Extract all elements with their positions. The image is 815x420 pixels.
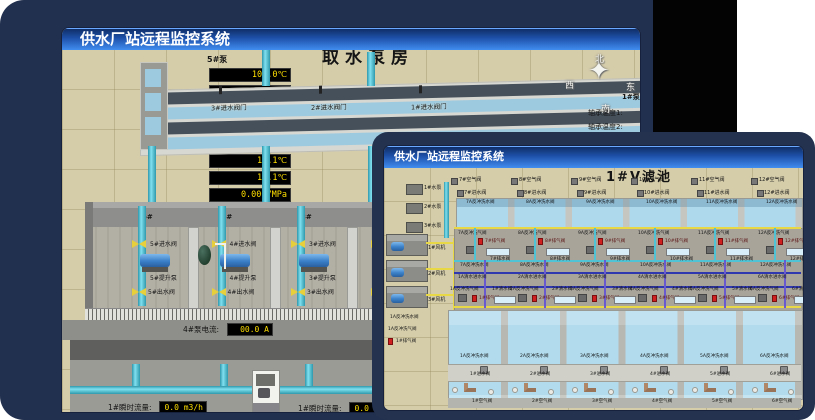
pump-house-left-wall bbox=[85, 202, 93, 308]
inlet-valve-label: 11#进水阀 bbox=[704, 191, 730, 196]
nozzle-dot bbox=[452, 387, 458, 393]
green-tank bbox=[198, 245, 211, 265]
bottom-walkway bbox=[448, 364, 801, 382]
nozzle-dot bbox=[632, 387, 638, 393]
air-pipe-elbow-icon bbox=[524, 383, 536, 392]
nozzle-dot bbox=[572, 387, 578, 393]
well-riser bbox=[132, 364, 140, 388]
wing-cell bbox=[145, 117, 161, 135]
water-box bbox=[666, 248, 690, 256]
gate-label: 1#进水阀门 bbox=[411, 103, 447, 112]
gate-label: 2#进水阀门 bbox=[311, 103, 347, 112]
bw-air-label: 5A反冲洗气阀 bbox=[690, 288, 718, 293]
pump-body[interactable] bbox=[140, 254, 170, 267]
inlet-valve-icon[interactable] bbox=[132, 240, 146, 249]
nozzle-dot bbox=[512, 387, 518, 393]
machine-icon bbox=[638, 294, 647, 302]
gate-valve-icon bbox=[219, 86, 222, 94]
drain-valve-label: 11#排水阀 bbox=[730, 258, 753, 263]
water-box bbox=[486, 248, 510, 256]
vent-valve-label: 7#排气阀 bbox=[485, 240, 505, 245]
air-valve-label: 11#空气阀 bbox=[699, 178, 725, 183]
inlet-valve-label: 4#进水阀 bbox=[230, 242, 257, 248]
reading-value: 0.0007MPa bbox=[209, 188, 291, 202]
inlet-valve-label: 12#进水阀 bbox=[764, 191, 790, 196]
cw-inlet-label: 1A清水进水阀 bbox=[458, 276, 486, 281]
bw-air-label: 6A反冲洗气阀 bbox=[750, 288, 778, 293]
inlet-valve-label: 2#进水阀 bbox=[530, 373, 550, 378]
nozzle-dot bbox=[548, 389, 554, 395]
pump4-current-value: 00.0 A bbox=[227, 323, 273, 336]
air-valve-label: 10#空气阀 bbox=[639, 178, 665, 183]
well-pump-box-base bbox=[253, 403, 279, 412]
machine-icon bbox=[458, 294, 467, 302]
air-valve-icon[interactable] bbox=[511, 178, 518, 185]
bw-water-label: 12A反冲洗水阀 bbox=[760, 264, 791, 269]
nozzle-dot bbox=[692, 387, 698, 393]
top-pools bbox=[456, 198, 803, 230]
inlet-valve-icon[interactable] bbox=[577, 190, 584, 197]
air-valve-label: 6#空气阀 bbox=[772, 400, 792, 405]
bw-air-label: 9A反冲洗气阀 bbox=[578, 232, 606, 237]
air-valve-label: 7#空气阀 bbox=[459, 178, 481, 183]
vent-valve-icon[interactable] bbox=[712, 295, 717, 302]
bw-water-top-label: 7A反冲洗水阀 bbox=[466, 201, 494, 206]
back-window-title: 供水厂站远程监控系统 bbox=[80, 30, 230, 48]
outlet-valve-icon[interactable] bbox=[212, 288, 226, 297]
air-valve-label: 12#空气阀 bbox=[759, 178, 785, 183]
inlet-valve-label: 6#进水阀 bbox=[770, 373, 790, 378]
water-box bbox=[546, 248, 570, 256]
machine-icon bbox=[578, 294, 587, 302]
inlet-valve-label: 3#进水阀 bbox=[309, 242, 336, 248]
nozzle-dot bbox=[488, 389, 494, 395]
air-valve-icon[interactable] bbox=[571, 178, 578, 185]
air-valve-label: 9#空气阀 bbox=[579, 178, 601, 183]
pump1-row2: 轴承温度2: bbox=[588, 124, 623, 131]
bw-air-label: 2A反冲洗气阀 bbox=[510, 288, 538, 293]
pump-body[interactable] bbox=[299, 254, 329, 267]
yellow-line-top bbox=[454, 227, 801, 229]
air-pipe-elbow-icon bbox=[464, 383, 476, 392]
air-valve-label: 5#空气阀 bbox=[712, 400, 732, 405]
left-vent-label: 1#排气阀 bbox=[396, 340, 416, 345]
water-box bbox=[794, 296, 803, 304]
water-box bbox=[674, 296, 696, 304]
blower-yellow-stub bbox=[426, 268, 454, 270]
bottom-pools bbox=[448, 310, 803, 400]
bw-water-top-label: 10A反冲洗水阀 bbox=[646, 201, 677, 206]
cyan-drop bbox=[474, 228, 476, 260]
nozzle-dot bbox=[728, 389, 734, 395]
small-pump-icon bbox=[406, 222, 423, 233]
compass-north: 北 bbox=[595, 52, 604, 65]
bw-air-label: 3A反冲洗气阀 bbox=[570, 288, 598, 293]
nozzle-dot bbox=[608, 389, 614, 395]
bw-water-top-label: 11A反冲洗水阀 bbox=[706, 201, 737, 206]
outlet-valve-icon[interactable] bbox=[291, 288, 305, 297]
blower-label: 1#风机 bbox=[428, 246, 445, 251]
vent-valve-label: 11#排气阀 bbox=[725, 240, 748, 245]
vent-valve-icon[interactable] bbox=[718, 238, 723, 245]
bw-air-label: 8A反冲洗气阀 bbox=[518, 232, 546, 237]
vent-valve-icon[interactable] bbox=[658, 238, 663, 245]
tank-bracket bbox=[215, 243, 226, 269]
gate-valve-icon bbox=[419, 85, 422, 93]
blue-header-pipe-1 bbox=[454, 272, 801, 274]
flow-left-value: 0.0 m3/h bbox=[159, 401, 207, 412]
air-pipe-elbow-icon bbox=[704, 383, 716, 392]
bw-water-label: 3A反冲洗水阀 bbox=[580, 355, 608, 360]
water-box bbox=[614, 296, 636, 304]
yellow-line-bottom bbox=[454, 306, 801, 308]
inlet-valve-icon[interactable] bbox=[457, 190, 464, 197]
pump4-current-label: 4#泵电流: bbox=[183, 326, 219, 334]
bw-air-label: 1A反冲洗气阀 bbox=[450, 288, 478, 293]
water-box bbox=[554, 296, 576, 304]
bottom-gray-strip bbox=[448, 398, 801, 408]
pipe-riser bbox=[262, 50, 270, 86]
small-pump-label: 1#水泵 bbox=[424, 186, 441, 191]
blower-yellow-stub bbox=[426, 294, 454, 296]
wing-cell bbox=[145, 93, 161, 111]
left-bw-air-label: 1A反冲洗气阀 bbox=[388, 328, 416, 333]
vent-valve-icon[interactable] bbox=[778, 238, 783, 245]
left-pipe bbox=[444, 182, 449, 238]
inlet-valve-label: 7#进水阀 bbox=[464, 191, 486, 196]
bw-water-top-label: 8A反冲洗水阀 bbox=[526, 201, 554, 206]
drain-valve-label: 10#排水阀 bbox=[670, 258, 693, 263]
small-pump-icon bbox=[406, 184, 423, 195]
small-pump-label: 2#水泵 bbox=[424, 205, 441, 210]
inlet-valve-label: 5#进水阀 bbox=[150, 242, 177, 248]
gate-valve-icon bbox=[319, 86, 322, 94]
vent-valve-icon[interactable] bbox=[532, 295, 537, 302]
compass-east: 东 bbox=[626, 80, 635, 93]
blower-pump-icon bbox=[391, 242, 404, 251]
inlet-valve-label: 8#进水阀 bbox=[524, 191, 546, 196]
vent-valve-icon[interactable] bbox=[478, 238, 483, 245]
pump1-title: 1#泵 bbox=[622, 94, 640, 101]
inlet-valve-icon[interactable] bbox=[757, 190, 764, 197]
pump-base bbox=[301, 267, 327, 272]
air-valve-icon[interactable] bbox=[691, 178, 698, 185]
cw-inlet-label: 2A清水进水阀 bbox=[518, 276, 546, 281]
inlet-valve-label: 9#进水阀 bbox=[584, 191, 606, 196]
outlet-valve-label: 4#出水阀 bbox=[228, 290, 255, 296]
machine-icon bbox=[698, 294, 707, 302]
nozzle-dot bbox=[788, 389, 794, 395]
bw-water-label: 1A反冲洗水阀 bbox=[460, 355, 488, 360]
left-bw-water-label: 1A反冲洗水阀 bbox=[390, 316, 418, 321]
cw-inlet-label: 5A清水进水阀 bbox=[698, 276, 726, 281]
inlet-gate[interactable]: 2#进水阀门 bbox=[311, 94, 347, 114]
pump-label: 4#提升泵 bbox=[230, 276, 257, 282]
air-valve-label: 3#空气阀 bbox=[592, 400, 612, 405]
well-pump-icon bbox=[256, 374, 275, 386]
air-valve-label: 8#空气阀 bbox=[519, 178, 541, 183]
cw-inlet-label: 6A清水进水阀 bbox=[758, 276, 786, 281]
small-pump-icon bbox=[406, 203, 423, 214]
window-v-filter: 供水厂站远程监控系统 1#V滤池 1#水泵 2#水泵 bbox=[384, 146, 803, 410]
well-riser bbox=[220, 364, 228, 388]
vent-valve-icon[interactable] bbox=[538, 238, 543, 245]
reading-value: 18.1℃ bbox=[209, 154, 291, 168]
small-pump-label: 3#水泵 bbox=[424, 224, 441, 229]
flow-left-label: 1#瞬时流量: bbox=[108, 404, 152, 412]
vent-valve-icon[interactable] bbox=[652, 295, 657, 302]
blower-pump-icon bbox=[391, 268, 404, 277]
drain-valve-label: 7#排水阀 bbox=[490, 258, 510, 263]
back-window-titlebar[interactable]: 供水厂站远程监控系统 bbox=[62, 28, 640, 50]
vent-valve-icon[interactable] bbox=[592, 295, 597, 302]
desktop: 供水厂站远程监控系统 取水泵房 5#泵 轴承温度1: 100.0℃ bbox=[0, 0, 815, 420]
bw-water-label: 4A反冲洗水阀 bbox=[640, 355, 668, 360]
air-pipe-elbow-icon bbox=[644, 383, 656, 392]
inlet-valve-label: 3#进水阀 bbox=[590, 373, 610, 378]
pipe-riser bbox=[367, 52, 375, 86]
front-window-titlebar[interactable]: 供水厂站远程监控系统 bbox=[384, 146, 803, 168]
pump-label: 5#提升泵 bbox=[150, 276, 177, 282]
vent-valve-label: 8#排气阀 bbox=[545, 240, 565, 245]
vent-valve-icon[interactable] bbox=[772, 295, 777, 302]
air-valve-icon[interactable] bbox=[451, 178, 458, 185]
reading-value: 100.0℃ bbox=[209, 68, 291, 82]
wing-cell bbox=[145, 69, 161, 87]
vent-valve-label: 10#排气阀 bbox=[665, 240, 688, 245]
inlet-valve-icon[interactable] bbox=[637, 190, 644, 197]
air-valve-icon[interactable] bbox=[751, 178, 758, 185]
nozzle-dot bbox=[668, 389, 674, 395]
bw-water-top-label: 12A反冲洗水阀 bbox=[766, 201, 797, 206]
reading-value: 18.1℃ bbox=[209, 171, 291, 185]
air-pipe-elbow-icon bbox=[764, 383, 776, 392]
well-pump-box[interactable] bbox=[252, 370, 280, 412]
bay-divider bbox=[270, 227, 281, 310]
bw-water-top-label: 9A反冲洗水阀 bbox=[586, 201, 614, 206]
outlet-valve-label: 5#出水阀 bbox=[148, 290, 175, 296]
bw-water-label: 10A反冲洗水阀 bbox=[640, 264, 671, 269]
pump-label: 3#提升泵 bbox=[309, 276, 336, 282]
filter-scene: 1#V滤池 1#水泵 2#水泵 bbox=[384, 168, 803, 410]
blower-yellow-stub bbox=[426, 242, 454, 244]
pipe-drop bbox=[148, 146, 156, 202]
well-pump-icon-body bbox=[258, 388, 270, 398]
flow-right-label: 1#瞬时流量: bbox=[298, 405, 342, 412]
pump-base bbox=[142, 267, 168, 272]
drain-valve-label: 9#排水阀 bbox=[610, 258, 630, 263]
nozzle-dot bbox=[752, 387, 758, 393]
vent-valve-label: 9#排气阀 bbox=[605, 240, 625, 245]
channel-wing bbox=[140, 62, 168, 150]
water-box bbox=[726, 248, 750, 256]
left-vent-valve-icon[interactable] bbox=[388, 338, 393, 345]
inlet-valve-icon[interactable] bbox=[697, 190, 704, 197]
cyan-drop bbox=[774, 228, 776, 260]
outlet-valve-icon[interactable] bbox=[132, 288, 146, 297]
inlet-gate[interactable]: 1#进水阀门 bbox=[411, 94, 447, 114]
compass-west: 西 bbox=[565, 78, 574, 91]
machine-icon bbox=[518, 294, 527, 302]
pump1-row1: 轴承温度1: bbox=[588, 110, 623, 117]
vent-valve-label: 12#排气阀 bbox=[785, 240, 803, 245]
inlet-valve-label: 10#进水阀 bbox=[644, 191, 670, 196]
outlet-valve-label: 3#出水阀 bbox=[307, 290, 334, 296]
machine-icon bbox=[758, 294, 767, 302]
water-box bbox=[494, 296, 516, 304]
well-riser bbox=[305, 364, 313, 388]
clean-valve-label: 6#清水阀 bbox=[792, 288, 803, 293]
blower-label: 2#风机 bbox=[428, 272, 445, 277]
gate-label: 3#进水阀门 bbox=[211, 104, 247, 113]
bw-air-label: 7A反冲洗气阀 bbox=[458, 232, 486, 237]
vent-valve-icon[interactable] bbox=[472, 295, 477, 302]
air-valve-icon[interactable] bbox=[631, 178, 638, 185]
bay-divider bbox=[188, 227, 199, 310]
air-valve-label: 2#空气阀 bbox=[532, 400, 552, 405]
inlet-gate[interactable]: 3#进水阀门 bbox=[211, 95, 247, 115]
bw-water-label: 5A反冲洗水阀 bbox=[700, 355, 728, 360]
bw-air-label: 4A反冲洗气阀 bbox=[630, 288, 658, 293]
inlet-valve-icon[interactable] bbox=[517, 190, 524, 197]
cw-inlet-label: 3A清水进水阀 bbox=[578, 276, 606, 281]
cw-inlet-label: 4A清水进水阀 bbox=[638, 276, 666, 281]
cyan-drop bbox=[594, 228, 596, 260]
vent-valve-icon[interactable] bbox=[598, 238, 603, 245]
inlet-valve-label: 4#进水阀 bbox=[650, 373, 670, 378]
inlet-valve-label: 5#进水阀 bbox=[710, 373, 730, 378]
water-box bbox=[786, 248, 803, 256]
bw-water-label: 6A反冲洗水阀 bbox=[760, 355, 788, 360]
inlet-valve-label: 1#进水阀 bbox=[470, 373, 490, 378]
pipe-drop bbox=[262, 146, 270, 202]
pump5-panel-title: 5#泵 bbox=[207, 56, 227, 64]
drain-valve-label: 8#排水阀 bbox=[550, 258, 570, 263]
bw-water-label: 2A反冲洗水阀 bbox=[520, 355, 548, 360]
blower-label: 3#风机 bbox=[428, 298, 445, 303]
water-box bbox=[606, 248, 630, 256]
air-pipe-elbow-icon bbox=[584, 383, 596, 392]
pump1-panel-partial: 1#泵 轴承温度1: 轴承温度2: bbox=[582, 94, 640, 134]
air-valve-label: 1#空气阀 bbox=[472, 400, 492, 405]
bay-divider bbox=[347, 227, 358, 310]
front-window-title: 供水厂站远程监控系统 bbox=[394, 150, 504, 163]
cyan-drop bbox=[534, 228, 536, 260]
inlet-valve-icon[interactable] bbox=[291, 240, 305, 249]
blower-pump-icon bbox=[391, 294, 404, 303]
cyan-drop bbox=[654, 228, 656, 260]
blank-panel bbox=[653, 0, 737, 144]
air-valve-label: 4#空气阀 bbox=[652, 400, 672, 405]
water-box bbox=[734, 296, 756, 304]
drain-valve-label: 12#排水阀 bbox=[790, 258, 803, 263]
bw-water-label: 11A反冲洗水阀 bbox=[700, 264, 731, 269]
cyan-drop bbox=[714, 228, 716, 260]
